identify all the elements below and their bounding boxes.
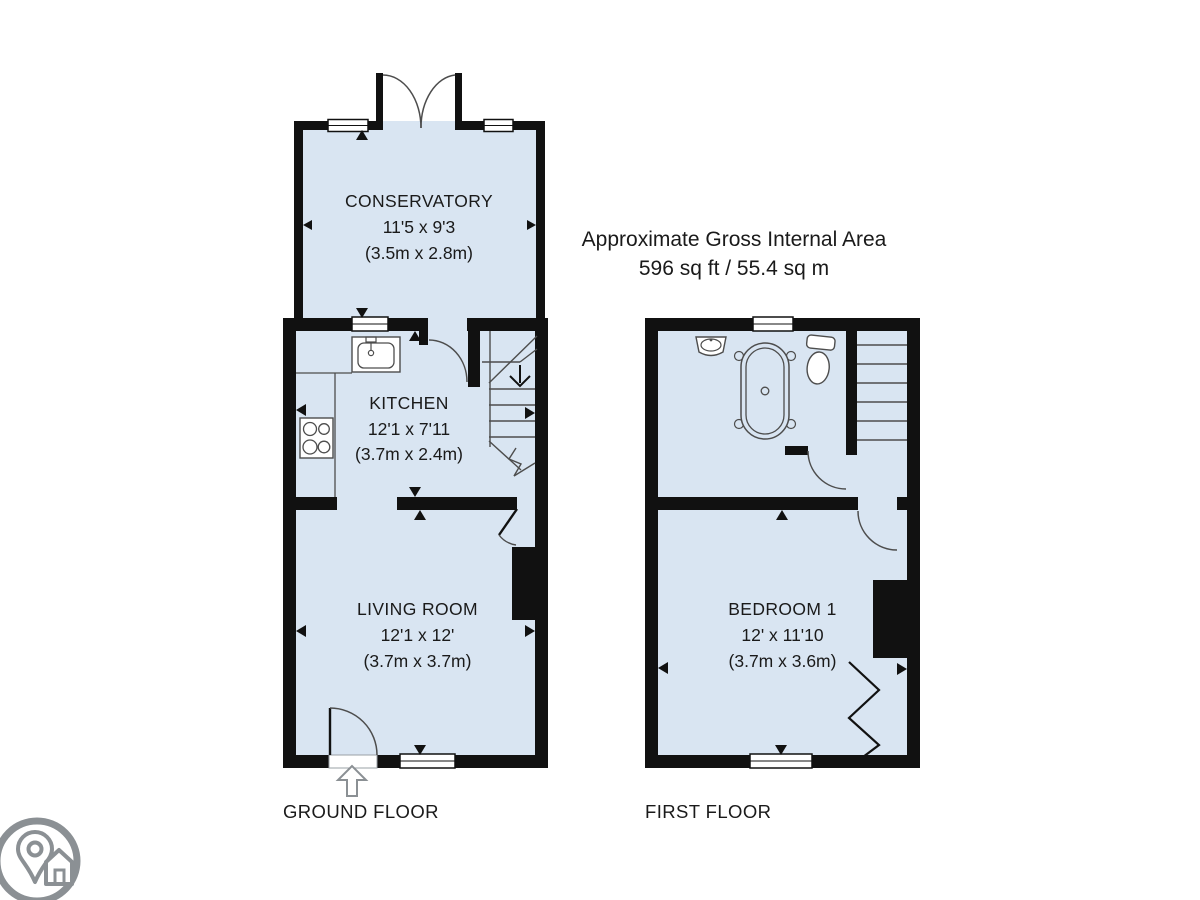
- floorplan-graphic: [0, 0, 1200, 900]
- gross-internal-area-title: Approximate Gross Internal Area 596 sq f…: [544, 225, 924, 283]
- basin-icon: [696, 337, 726, 356]
- entrance-arrow-icon: [338, 766, 366, 796]
- gross-area-line1: Approximate Gross Internal Area: [544, 225, 924, 254]
- room-label-conservatory: CONSERVATORY 11'5 x 9'3 (3.5m x 2.8m): [302, 188, 536, 266]
- gross-area-line2: 596 sq ft / 55.4 sq m: [544, 254, 924, 283]
- sink-icon: [352, 337, 400, 372]
- living-room-name: LIVING ROOM: [300, 596, 535, 622]
- first-floor-label: FIRST FLOOR: [645, 801, 771, 823]
- conservatory-dims-metric: (3.5m x 2.8m): [302, 240, 536, 266]
- map-pin-house-logo-icon: [0, 821, 77, 900]
- bathroom-window: [753, 317, 793, 331]
- room-label-kitchen: KITCHEN 12'1 x 7'11 (3.7m x 2.4m): [296, 391, 522, 468]
- bedroom-window: [750, 754, 812, 768]
- conservatory-dims-imperial: 11'5 x 9'3: [302, 214, 536, 240]
- ground-floor-label: GROUND FLOOR: [283, 801, 439, 823]
- living-room-dims-metric: (3.7m x 3.7m): [300, 648, 535, 674]
- floorplan-page: Approximate Gross Internal Area 596 sq f…: [0, 0, 1200, 900]
- kitchen-dims-metric: (3.7m x 2.4m): [296, 442, 522, 468]
- bedroom-1-dims-imperial: 12' x 11'10: [665, 622, 900, 648]
- bath-icon: [735, 343, 796, 439]
- bedroom-1-name: BEDROOM 1: [665, 596, 900, 622]
- room-label-bedroom-1: BEDROOM 1 12' x 11'10 (3.7m x 3.6m): [665, 596, 900, 674]
- living-room-window: [400, 754, 455, 768]
- conservatory-name: CONSERVATORY: [302, 188, 536, 214]
- kitchen-dims-imperial: 12'1 x 7'11: [296, 417, 522, 443]
- first-floor-plan: [645, 317, 920, 768]
- room-label-living-room: LIVING ROOM 12'1 x 12' (3.7m x 3.7m): [300, 596, 535, 674]
- kitchen-name: KITCHEN: [296, 391, 522, 417]
- living-room-dims-imperial: 12'1 x 12': [300, 622, 535, 648]
- bedroom-1-dims-metric: (3.7m x 3.6m): [665, 648, 900, 674]
